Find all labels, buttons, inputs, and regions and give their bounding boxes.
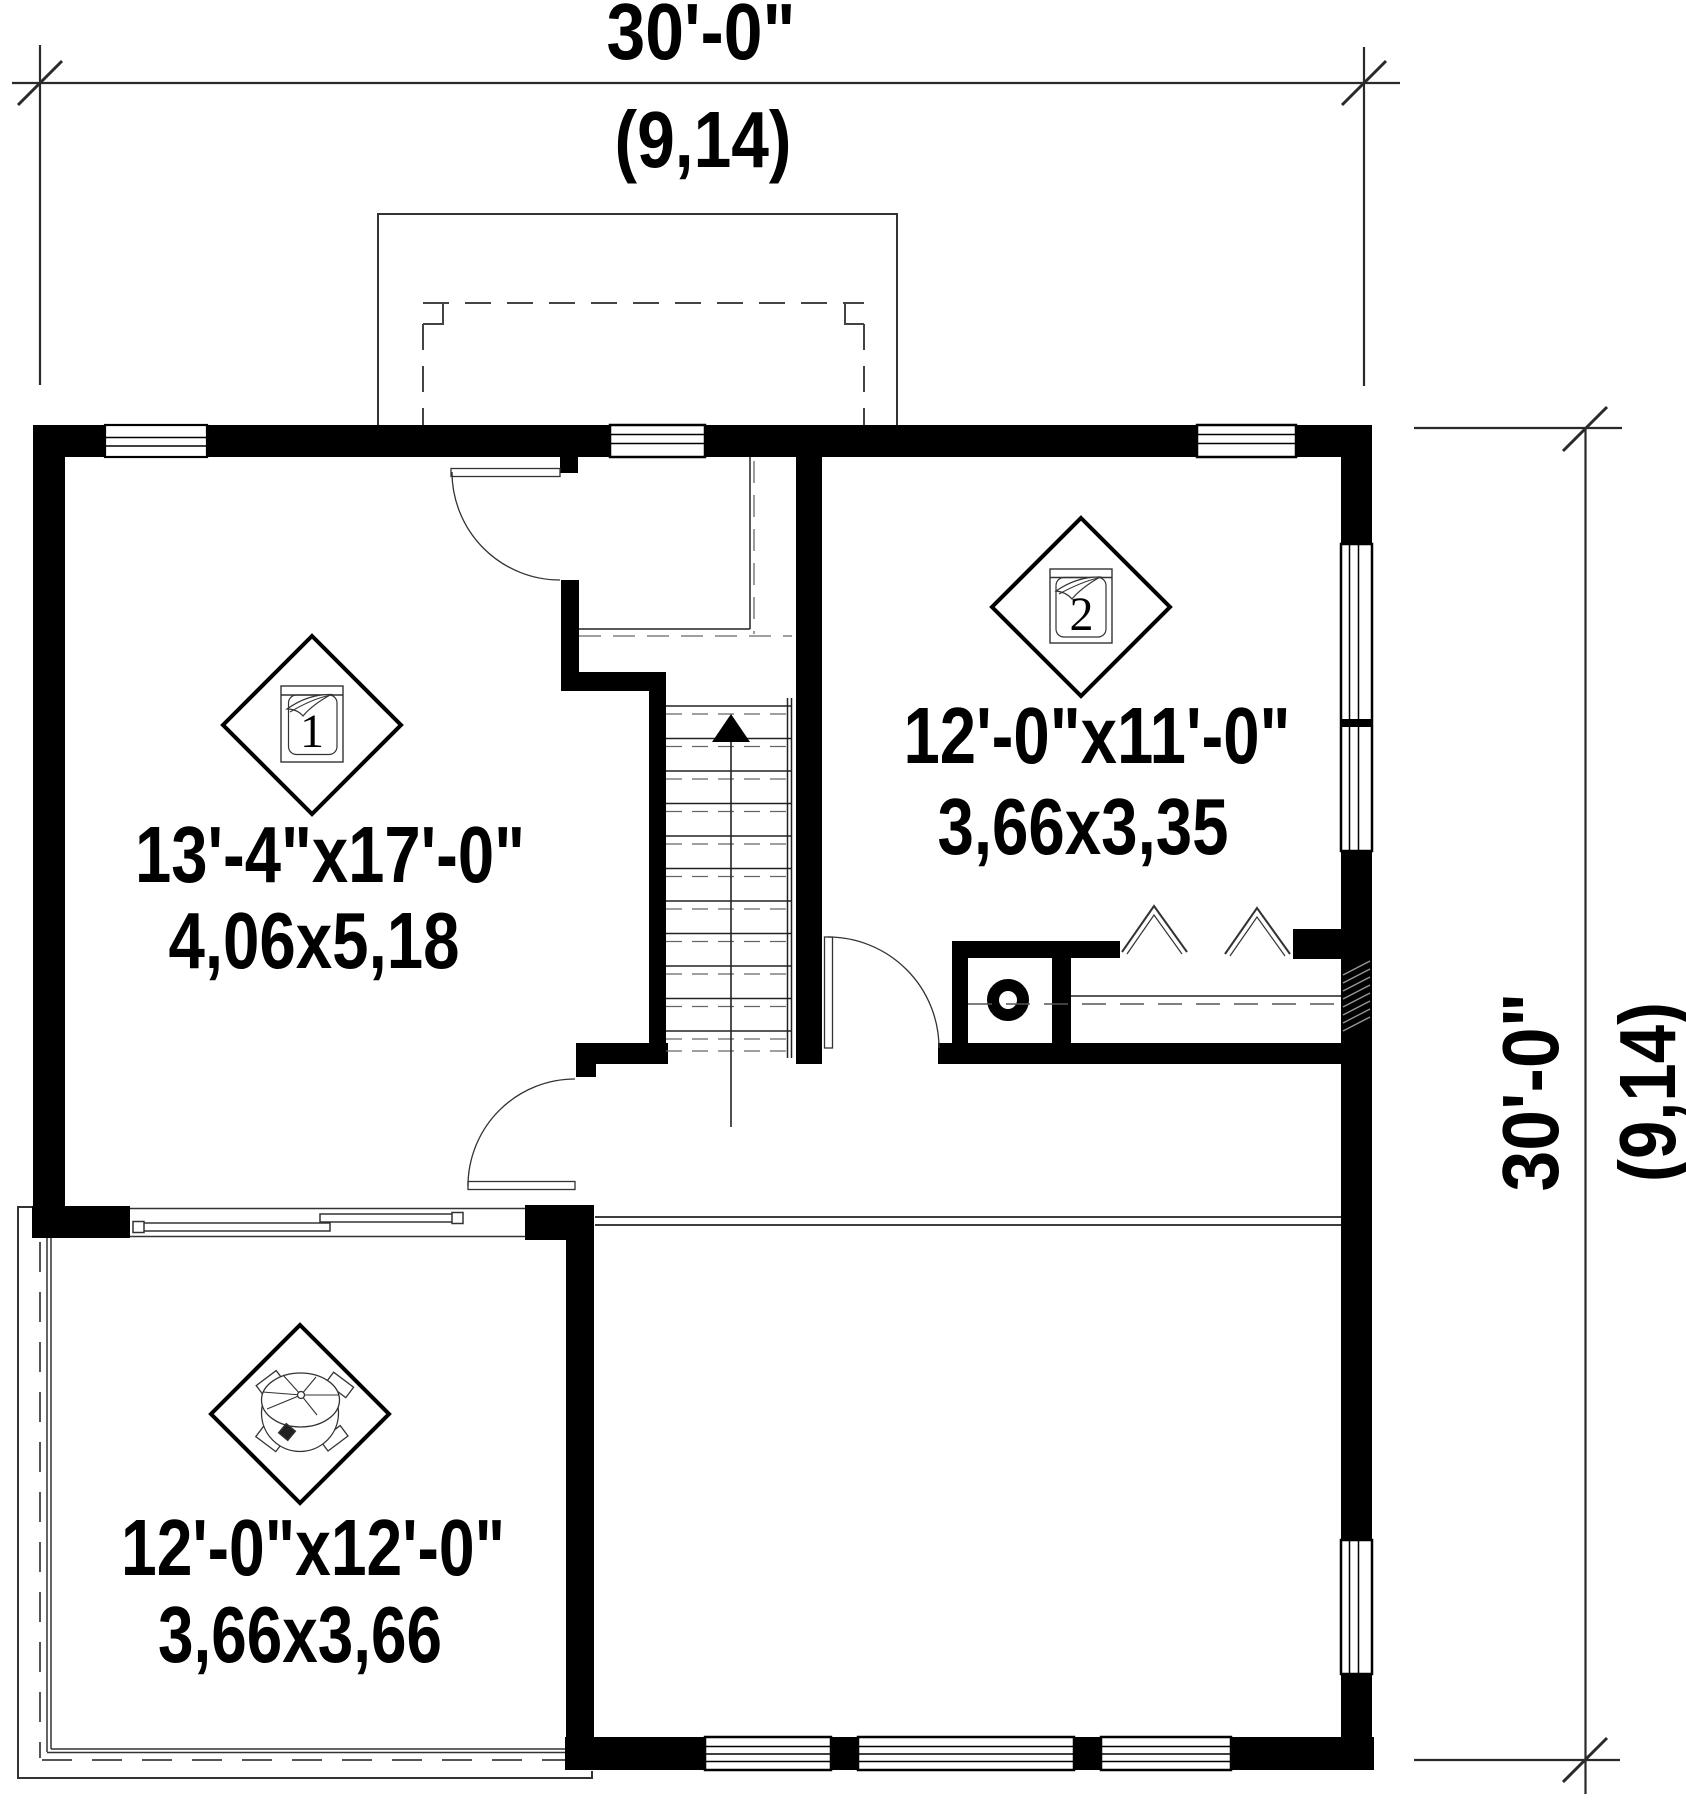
svg-text:3,66x3,66: 3,66x3,66	[158, 1590, 442, 1679]
svg-text:(9,14): (9,14)	[1603, 1002, 1686, 1182]
svg-text:30'-0": 30'-0"	[607, 0, 796, 76]
svg-text:12'-0"x12'-0": 12'-0"x12'-0"	[121, 1503, 505, 1592]
svg-text:(9,14): (9,14)	[615, 95, 792, 184]
svg-text:12'-0"x11'-0": 12'-0"x11'-0"	[904, 691, 1291, 780]
svg-text:1: 1	[300, 705, 324, 758]
svg-text:3,66x3,35: 3,66x3,35	[938, 782, 1229, 871]
svg-text:2: 2	[1070, 588, 1094, 641]
svg-text:30'-0": 30'-0"	[1486, 993, 1575, 1192]
svg-text:13'-4"x17'-0": 13'-4"x17'-0"	[135, 810, 525, 899]
svg-text:4,06x5,18: 4,06x5,18	[169, 896, 460, 985]
